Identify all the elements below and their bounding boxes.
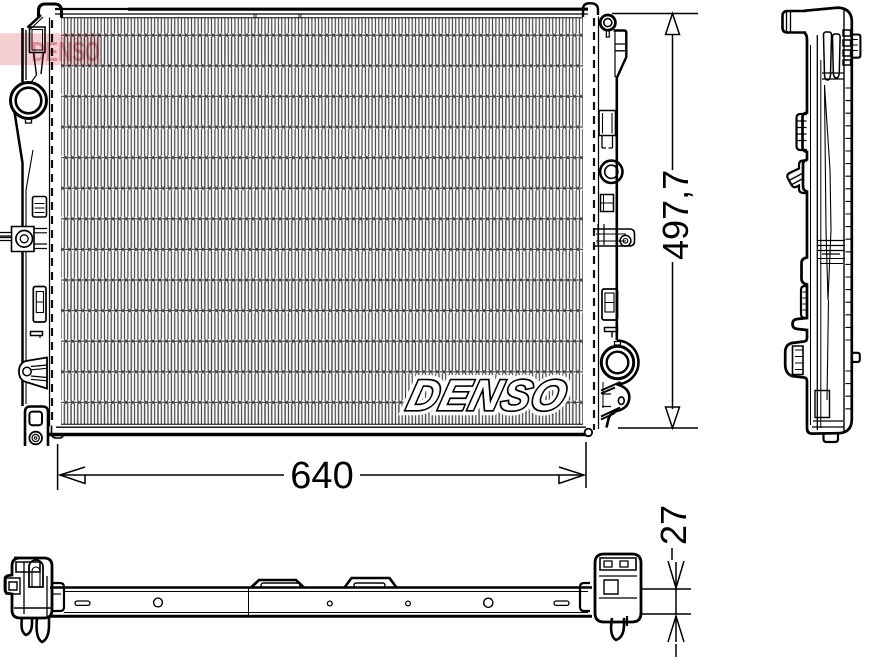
svg-text:497,7: 497,7 xyxy=(655,170,696,260)
svg-text:27: 27 xyxy=(653,505,694,545)
svg-text:DENSO: DENSO xyxy=(403,372,573,420)
svg-text:DENSO: DENSO xyxy=(32,38,100,68)
svg-text:640: 640 xyxy=(290,455,353,497)
